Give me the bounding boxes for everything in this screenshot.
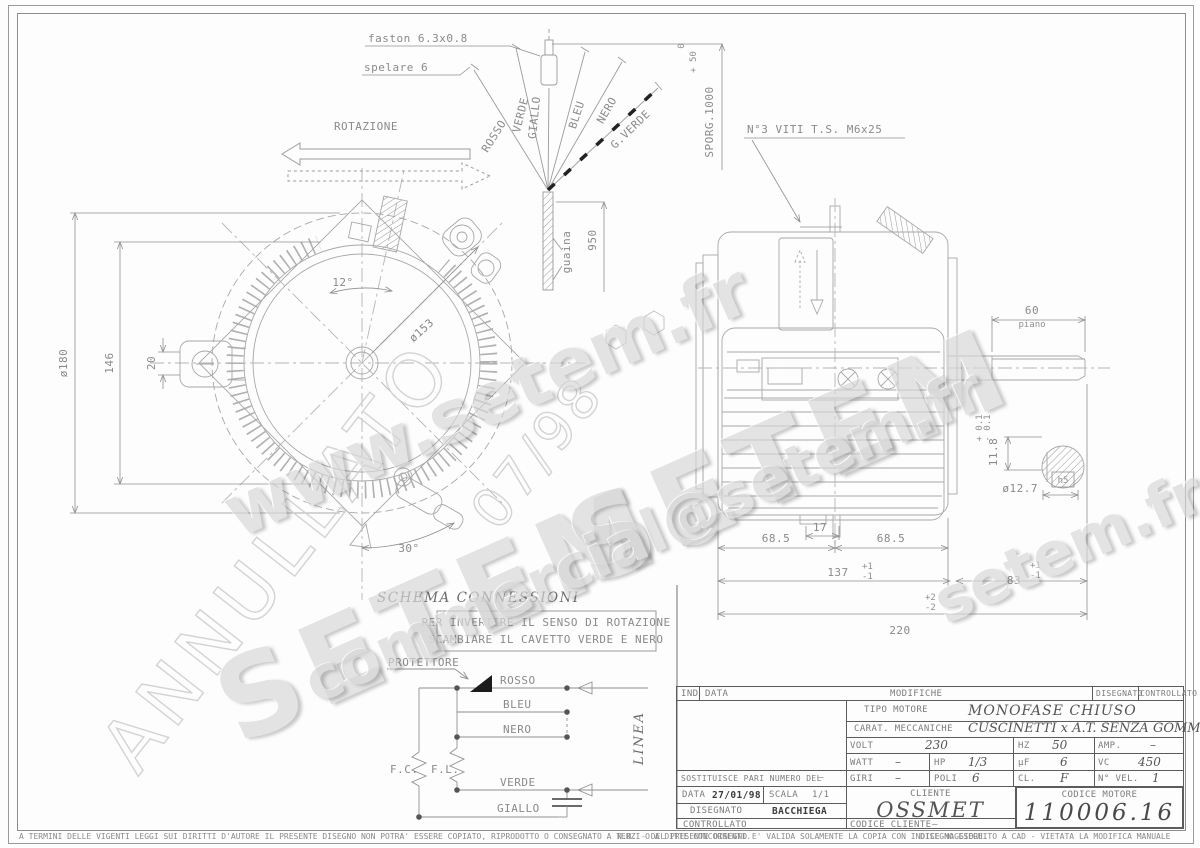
tb-hz-label: HZ bbox=[1018, 741, 1030, 751]
tb-data-val: 27/01/98 bbox=[712, 790, 761, 801]
guaina-label: guaina bbox=[560, 231, 573, 274]
tb-cl-label: CL. bbox=[1018, 774, 1035, 784]
dim-17: 17 bbox=[813, 521, 827, 534]
tol-220p: +2 bbox=[925, 593, 936, 603]
schema-wire-rosso: ROSSO bbox=[500, 674, 536, 687]
schema-note-2: SCAMBIARE IL CAVETTO VERDE E NERO bbox=[428, 633, 663, 646]
tb-tipo-label: TIPO MOTORE bbox=[864, 705, 928, 715]
tb-carat-label: CARAT. MECCANICHE bbox=[854, 724, 953, 734]
tol-83m: -1 bbox=[1030, 571, 1041, 581]
dim-h5: h5 bbox=[1058, 476, 1069, 486]
wire-nero: NERO bbox=[594, 95, 620, 126]
fl-label: F.L. bbox=[431, 763, 460, 776]
tb-volt-label: VOLT bbox=[850, 741, 873, 751]
tb-disegnato-label: DISEGNATO bbox=[690, 806, 742, 816]
dim-83: 83 bbox=[1007, 574, 1021, 587]
protector-symbol bbox=[470, 675, 492, 692]
tb-hp-label: HP bbox=[934, 758, 946, 768]
dim-20: 20 bbox=[145, 356, 158, 370]
tb-uf-label: μF bbox=[1018, 758, 1030, 768]
tb-carat-val: CUSCINETTI x A.T. SENZA GOMME bbox=[968, 721, 1200, 736]
drawing-sheet: ø180 146 20 ø153 12° 30° ROTAZIONE bbox=[0, 0, 1200, 848]
tb-amp-label: AMP. bbox=[1098, 741, 1121, 751]
dim-angle30: 30° bbox=[398, 542, 419, 555]
tb-nvel-val: 1 bbox=[1152, 771, 1160, 785]
tb-watt-label: WATT bbox=[850, 758, 873, 768]
tb-giri-val: – bbox=[895, 771, 901, 785]
connection-schema: SCHEMA CONNESSIONI PER INVERTIRE IL SENS… bbox=[377, 585, 677, 829]
wire-bleu: BLEU bbox=[566, 99, 587, 130]
spelare-label: spelare 6 bbox=[364, 61, 428, 74]
tol-137m: -1 bbox=[862, 572, 873, 582]
tb-hz-val: 50 bbox=[1052, 738, 1067, 752]
tb-scala-val: 1/1 bbox=[812, 790, 829, 800]
schema-wire-verde: VERDE bbox=[500, 776, 536, 789]
dim-60: 60 bbox=[1025, 304, 1039, 317]
tb-codice-motore-val: 110006.16 bbox=[1015, 800, 1184, 826]
tb-uf-val: 6 bbox=[1060, 755, 1068, 769]
tb-tipo-val: MONOFASE CHIUSO bbox=[968, 703, 1137, 719]
tb-vc-label: VC bbox=[1098, 758, 1110, 768]
dim-950: 950 bbox=[586, 229, 599, 250]
schema-wire-giallo: GIALLO bbox=[497, 802, 540, 815]
tb-sostituisce: SOSTITUISCE PARI NUMERO DEL bbox=[681, 774, 822, 783]
dim-146: 146 bbox=[103, 352, 116, 373]
tb-ind: IND bbox=[681, 689, 698, 699]
dim-137: 137 bbox=[827, 566, 848, 579]
side-view bbox=[696, 198, 1110, 548]
dim-angle12: 12° bbox=[332, 276, 353, 289]
protettore-label: PROTETTORE bbox=[388, 656, 459, 669]
tb-poli-label: POLI bbox=[934, 774, 957, 784]
tb-cliente-val: OSSMET bbox=[846, 798, 1015, 822]
dim-dia153: ø153 bbox=[407, 316, 437, 345]
wire-rosso: ROSSO bbox=[479, 118, 509, 155]
footer-cad: DISEGNO ESEGUITO A CAD - VIETATA LA MODI… bbox=[920, 832, 1170, 841]
tb-nvel-label: N° VEL. bbox=[1098, 774, 1139, 784]
tb-poli-val: 6 bbox=[972, 771, 980, 785]
tb-data-label: DATA bbox=[682, 790, 705, 800]
tb-codice-cliente-val: – bbox=[932, 820, 938, 830]
schema-note-1: PER INVERTIRE IL SENSO DI ROTAZIONE bbox=[421, 616, 670, 629]
rotation-arrows bbox=[282, 143, 490, 189]
junction-dots bbox=[416, 685, 570, 820]
schema-wire-nero: NERO bbox=[503, 723, 532, 736]
tb-modifiche: MODIFICHE bbox=[890, 689, 942, 699]
tb-codice-cliente-label: CODICE CLIENTE bbox=[850, 820, 931, 830]
dim-685b: 68.5 bbox=[877, 532, 906, 545]
tb-amp-val: – bbox=[1150, 738, 1156, 752]
faston-label: faston 6.3x0.8 bbox=[368, 32, 468, 45]
tb-controllato-label: CONTROLLATO bbox=[683, 820, 747, 830]
tb-sostituisce-val: – bbox=[818, 773, 824, 783]
tb-scala-label: SCALA bbox=[769, 790, 798, 800]
tb-cl-val: F bbox=[1060, 771, 1068, 785]
sporg-label: SPORG.1000 bbox=[703, 86, 716, 157]
tol-118m: - 0.1 bbox=[983, 414, 993, 441]
schema-wire-bleu: BLEU bbox=[503, 698, 532, 711]
tb-codice-motore-label: CODICE MOTORE bbox=[1015, 790, 1184, 800]
tb-disegnato-h: DISEGNATO bbox=[1096, 689, 1143, 698]
stamp-hexagons bbox=[606, 311, 664, 349]
piano-label: piano bbox=[1018, 320, 1045, 330]
tb-disegnato-val: BACCHIEGA bbox=[772, 806, 827, 817]
tb-data-h: DATA bbox=[705, 689, 728, 699]
tol-137p: +1 bbox=[862, 562, 873, 572]
tb-giri-label: GIRI bbox=[850, 774, 873, 784]
sporg-tol-minus: 0 bbox=[677, 43, 687, 48]
schema-title: SCHEMA CONNESSIONI bbox=[377, 590, 580, 606]
dim-685a: 68.5 bbox=[762, 532, 791, 545]
tol-83p: +1 bbox=[1030, 561, 1041, 571]
fc-label: F.C. bbox=[390, 763, 419, 776]
sporg-tol-plus: + 50 bbox=[689, 51, 699, 73]
dim-dia127: ø12.7 bbox=[1002, 482, 1038, 495]
linea-label: LINEA bbox=[632, 711, 647, 766]
tb-watt-val: – bbox=[895, 755, 901, 769]
viti-callout: N°3 VITI T.S. M6x25 bbox=[747, 123, 882, 136]
tb-vc-val: 450 bbox=[1138, 755, 1161, 769]
tb-controllato-h: CONTROLLATO bbox=[1140, 689, 1197, 698]
tb-volt-val: 230 bbox=[925, 738, 948, 752]
front-view bbox=[150, 168, 585, 600]
dim-dia180: ø180 bbox=[57, 349, 70, 378]
tb-hp-val: 1/3 bbox=[968, 755, 987, 769]
dim-220: 220 bbox=[889, 624, 910, 637]
rotation-label: ROTAZIONE bbox=[334, 120, 398, 133]
tol-220m: -2 bbox=[925, 603, 936, 613]
